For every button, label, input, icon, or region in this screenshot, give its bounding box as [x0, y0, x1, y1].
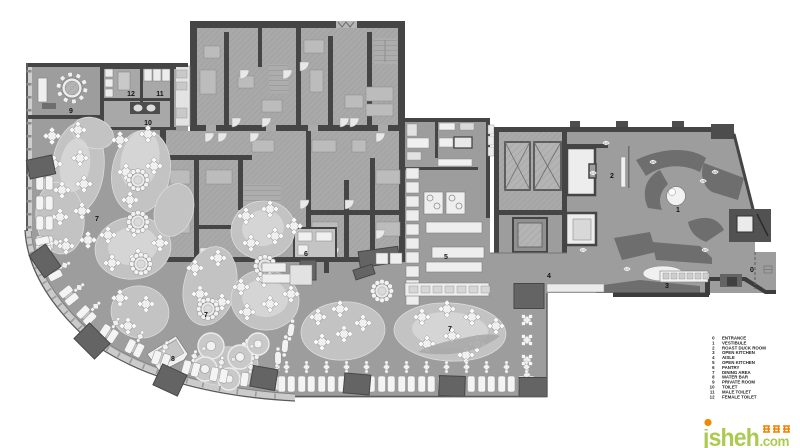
svg-text:OPEN KITCHEN: OPEN KITCHEN [722, 360, 755, 365]
svg-text:WATER BAR: WATER BAR [722, 375, 749, 380]
svg-text:TOILET: TOILET [722, 385, 738, 390]
svg-text:11: 11 [156, 91, 164, 98]
svg-text:6: 6 [712, 365, 715, 370]
svg-text:PRIVATE ROOM: PRIVATE ROOM [722, 380, 755, 385]
svg-text:OPEN KITCHEN: OPEN KITCHEN [722, 350, 755, 355]
svg-text:5: 5 [444, 254, 448, 261]
svg-text:5: 5 [712, 360, 715, 365]
svg-text:3: 3 [665, 283, 669, 290]
svg-text:11: 11 [710, 389, 715, 394]
svg-text:12: 12 [127, 91, 135, 98]
svg-text:DINING AREA: DINING AREA [722, 370, 752, 375]
svg-text:12: 12 [710, 394, 715, 399]
svg-text:10: 10 [144, 120, 152, 127]
svg-text:ROAST DUCK ROOM: ROAST DUCK ROOM [722, 345, 766, 350]
svg-text:.com: .com [760, 434, 790, 448]
svg-text:9: 9 [69, 108, 73, 115]
svg-text:ENTRANCE: ENTRANCE [722, 336, 746, 341]
svg-text:VESTIBULE: VESTIBULE [722, 340, 747, 345]
svg-text:1: 1 [712, 340, 715, 345]
svg-text:4: 4 [712, 355, 715, 360]
svg-text:0: 0 [750, 267, 754, 274]
svg-text:9: 9 [712, 380, 715, 385]
svg-text:FEMALE TOILET: FEMALE TOILET [722, 394, 757, 399]
svg-text:6: 6 [304, 251, 308, 258]
svg-text:2: 2 [712, 345, 715, 350]
svg-text:7: 7 [448, 326, 452, 333]
svg-text:MALE TOILET: MALE TOILET [722, 389, 751, 394]
svg-text:8: 8 [171, 356, 175, 363]
svg-text:7: 7 [204, 312, 208, 319]
svg-text:0: 0 [712, 336, 715, 341]
svg-text:8: 8 [712, 375, 715, 380]
svg-text:3: 3 [712, 350, 715, 355]
svg-text:AISLE: AISLE [722, 355, 735, 360]
svg-text:PANTRY: PANTRY [722, 365, 740, 370]
svg-text:4: 4 [547, 273, 551, 280]
svg-text:10: 10 [710, 385, 715, 390]
svg-text:7: 7 [712, 370, 715, 375]
svg-text:1: 1 [676, 207, 680, 214]
svg-text:2: 2 [610, 173, 614, 180]
svg-text:7: 7 [95, 216, 99, 223]
